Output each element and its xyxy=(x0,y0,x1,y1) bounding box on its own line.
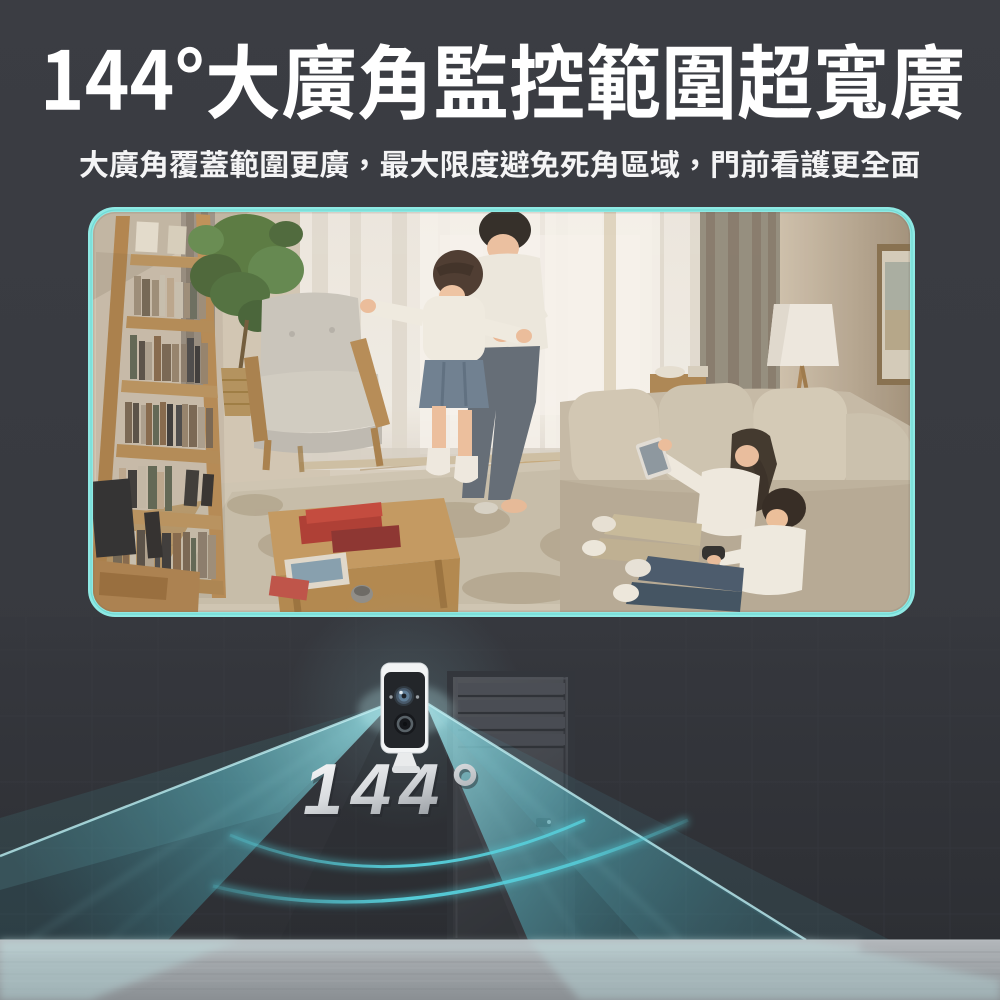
svg-text:144°: 144° xyxy=(303,750,484,830)
